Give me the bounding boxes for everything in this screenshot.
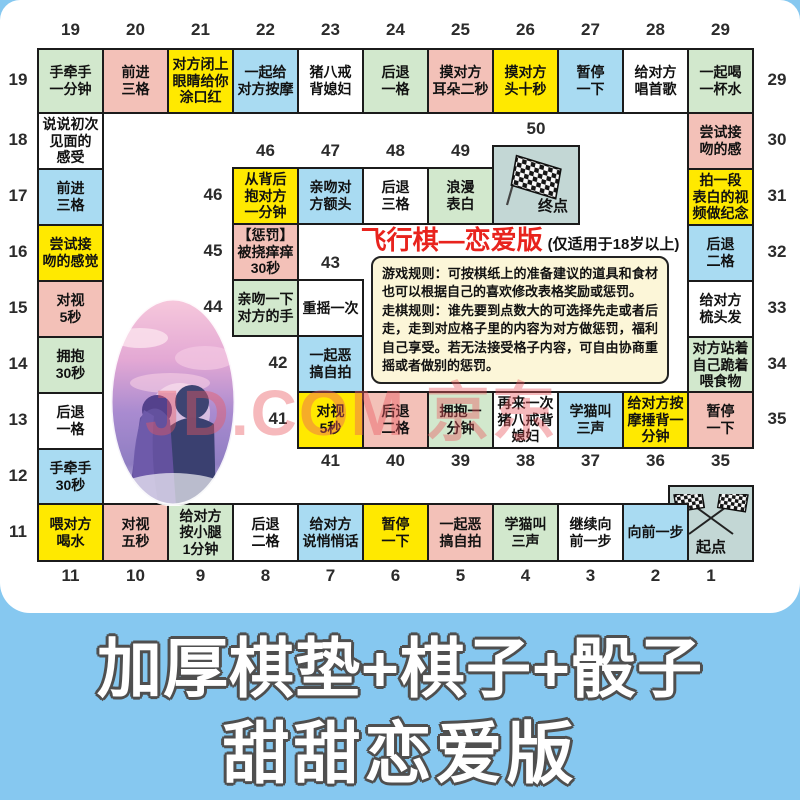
board-cell-36: 给对方按 摩捶背一 分钟 [622,391,689,449]
board-cell-47: 亲吻对 方额头 [297,167,364,225]
start-cell-label: 起点 [696,536,726,557]
board-cell-46: 从背后 抱对方 一分钟 [232,167,299,225]
board-cell-28: 给对方 唱首歌 [622,48,689,114]
cell-number-38: 38 [492,451,559,471]
cell-number-21: 21 [167,20,234,40]
board-cell-9: 给对方 按小腿 1分钟 [167,503,234,562]
cell-number-15: 15 [2,298,34,318]
finish-cell-label: 终点 [538,195,568,216]
cell-number-37: 37 [557,451,624,471]
cell-task-text: 亲吻一下 对方的手 [238,291,294,324]
cell-number-16: 16 [2,242,34,262]
cell-task-text: 暂停 一下 [577,64,605,97]
cell-number-9: 9 [167,566,234,586]
cell-number-7: 7 [297,566,364,586]
cell-number-3: 3 [557,566,624,586]
cell-number-30: 30 [761,130,793,150]
board-cell-16: 尝试接 吻的感觉 [37,224,104,282]
board-cell-3: 继续向 前一步 [557,503,624,562]
cell-task-text: 摸对方 耳朵二秒 [433,64,489,97]
cell-task-text: 后退 一格 [382,64,410,97]
cell-number-11: 11 [2,522,34,542]
cell-task-text: 暂停 一下 [707,403,735,436]
cell-number-32: 32 [761,242,793,262]
board-cell-26: 摸对方 头十秒 [492,48,559,114]
cell-number-41: 41 [297,451,364,471]
cell-number-39: 39 [427,451,494,471]
board-cell-10: 对视 五秒 [102,503,169,562]
cell-number-47: 47 [297,141,364,161]
cell-number-24: 24 [362,20,429,40]
cell-number-36: 36 [622,451,689,471]
cell-task-text: 给对方按 摩捶背一 分钟 [628,395,684,445]
board-title: 飞行棋—恋爱版 [361,220,543,257]
cell-number-13: 13 [2,410,34,430]
cell-task-text: 亲吻对 方额头 [310,179,352,212]
cell-task-text: 对方站着 自己跪着 喂食物 [693,340,749,390]
page: { "page": { "watermark": "JD.COM 京东", "b… [0,0,800,800]
cell-task-text: 说说初次 见面的 感受 [43,116,99,166]
board-title-row: 飞行棋—恋爱版 (仅适用于18岁以上) [368,220,672,257]
board-cell-30: 尝试接 吻的感 [687,112,754,170]
board-cell-49: 浪漫 表白 [427,167,494,225]
cell-task-text: 喂对方 喝水 [50,516,92,549]
board-title-note: (仅适用于18岁以上) [548,233,680,254]
cell-number-31: 31 [761,186,793,206]
jd-watermark: JD.COM 京东 [145,362,558,454]
cell-task-text: 前进 三格 [57,180,85,213]
cell-task-text: 给对方 梳头发 [700,292,742,325]
board-cell-35: 暂停 一下 [687,391,754,449]
cell-number-46: 46 [232,141,299,161]
cell-number-14: 14 [2,354,34,374]
cell-number-25: 25 [427,20,494,40]
cell-task-text: 一起喝 一杯水 [700,64,742,97]
cell-task-text: 前进 三格 [122,64,150,97]
cell-task-text: 给对方 说悄悄话 [303,516,359,549]
cell-task-text: 学猫叫 三声 [570,403,612,436]
cell-task-text: 学猫叫 三声 [505,516,547,549]
banner-line1: 加厚棋垫+棋子+骰子 [0,616,800,710]
board-cell-24: 后退 一格 [362,48,429,114]
cell-number-40: 40 [362,451,429,471]
board-cell-31: 拍一段 表白的视 频做纪念 [687,168,754,226]
board-cell-7: 给对方 说悄悄话 [297,503,364,562]
cell-task-text: 手牵手 30秒 [50,460,92,493]
board-cell-14: 拥抱 30秒 [37,336,104,394]
board-cell-11: 喂对方 喝水 [37,503,104,562]
cell-task-text: 对方闭上 眼睛给你 涂口红 [173,56,229,106]
cell-number-28: 28 [622,20,689,40]
cell-task-text: 浪漫 表白 [447,179,475,212]
board-cell-19: 手牵手 一分钟 [37,48,104,114]
board-cell-29: 一起喝 一杯水 [687,48,754,114]
cell-number-10: 10 [102,566,169,586]
cell-task-text: 【惩罚】 被挠痒痒 30秒 [238,227,294,277]
cell-task-text: 从背后 抱对方 一分钟 [245,171,287,221]
board-cell-2: 向前一步 [622,503,689,562]
board-cell-33: 给对方 梳头发 [687,280,754,338]
cell-number-33: 33 [761,298,793,318]
board-cell-34: 对方站着 自己跪着 喂食物 [687,336,754,394]
cell-number-22: 22 [232,20,299,40]
cell-task-text: 一起恶 搞自拍 [440,516,482,549]
board-cell-48: 后退 三格 [362,167,429,225]
board-cell-37: 学猫叫 三声 [557,391,624,449]
cell-number-23: 23 [297,20,364,40]
board-cell-20: 前进 三格 [102,48,169,114]
board-cell-5: 一起恶 搞自拍 [427,503,494,562]
cell-task-text: 对视 五秒 [122,516,150,549]
cell-number-17: 17 [2,186,34,206]
cell-task-text: 摸对方 头十秒 [505,64,547,97]
cell-number-35: 35 [761,409,793,429]
board-cell-43: 重摇一次 [297,279,364,337]
cell-task-text: 后退 一格 [57,404,85,437]
board-cell-50: 终点 [492,145,580,225]
cell-number-18: 18 [2,130,34,150]
board-panel: 起点1向前一步2继续向 前一步3学猫叫 三声4一起恶 搞自拍5暂停 一下6给对方… [0,0,800,613]
board-cell-21: 对方闭上 眼睛给你 涂口红 [167,48,234,114]
cell-task-text: 向前一步 [628,524,684,541]
cell-number-11: 11 [37,566,104,586]
cell-number-27: 27 [557,20,624,40]
cell-task-text: 给对方 唱首歌 [635,64,677,97]
cell-task-text: 拍一段 表白的视 频做纪念 [693,172,749,222]
banner-line2: 甜甜恋爱版 [0,700,800,797]
cell-number-4: 4 [492,566,559,586]
cell-task-text: 继续向 前一步 [570,516,612,549]
cell-number-12: 12 [2,466,34,486]
board-cell-17: 前进 三格 [37,168,104,226]
cell-number-2: 2 [622,566,689,586]
cell-task-text: 后退 二格 [252,516,280,549]
board-cell-23: 猪八戒 背媳妇 [297,48,364,114]
cell-number-29: 29 [761,70,793,90]
cell-number-49: 49 [427,141,494,161]
cell-number-46: 46 [197,185,229,205]
board-cell-45: 【惩罚】 被挠痒痒 30秒 [232,223,299,281]
board-cell-32: 后退 二格 [687,224,754,282]
cell-task-text: 暂停 一下 [382,516,410,549]
game-rules-text: 游戏规则：可按棋纸上的准备建议的道具和食材也可以根据自己的喜欢修改表格奖励或惩罚… [382,265,658,302]
board-cell-22: 一起给 对方按摩 [232,48,299,114]
cell-task-text: 尝试接 吻的感 [700,124,742,157]
cell-task-text: 给对方 按小腿 1分钟 [180,508,222,558]
board-cell-15: 对视 5秒 [37,280,104,338]
cell-task-text: 对视 5秒 [57,292,85,325]
board-cell-18: 说说初次 见面的 感受 [37,112,104,170]
cell-task-text: 尝试接 吻的感觉 [43,236,99,269]
cell-number-34: 34 [761,354,793,374]
cell-task-text: 手牵手 一分钟 [50,64,92,97]
board-cell-12: 手牵手 30秒 [37,448,104,505]
board-cell-25: 摸对方 耳朵二秒 [427,48,494,114]
cell-number-50: 50 [492,119,580,139]
board-cell-13: 后退 一格 [37,392,104,450]
cell-task-text: 后退 二格 [707,236,735,269]
board-cell-6: 暂停 一下 [362,503,429,562]
cell-number-6: 6 [362,566,429,586]
cell-task-text: 一起给 对方按摩 [238,64,294,97]
board-cell-44: 亲吻一下 对方的手 [232,279,299,337]
board-cell-27: 暂停 一下 [557,48,624,114]
cell-task-text: 拥抱 30秒 [56,348,86,381]
cell-number-19: 19 [2,70,34,90]
board-cell-8: 后退 二格 [232,503,299,562]
cell-number-45: 45 [197,241,229,261]
cell-task-text: 重摇一次 [303,300,359,317]
cell-number-43: 43 [297,253,364,273]
board-cell-4: 学猫叫 三声 [492,503,559,562]
cell-number-48: 48 [362,141,429,161]
cell-number-35: 35 [687,451,754,471]
cell-number-20: 20 [102,20,169,40]
cell-number-26: 26 [492,20,559,40]
cell-task-text: 猪八戒 背媳妇 [310,64,352,97]
cell-task-text: 后退 三格 [382,179,410,212]
cell-number-8: 8 [232,566,299,586]
cell-number-29: 29 [687,20,754,40]
cell-number-19: 19 [37,20,104,40]
cell-number-5: 5 [427,566,494,586]
